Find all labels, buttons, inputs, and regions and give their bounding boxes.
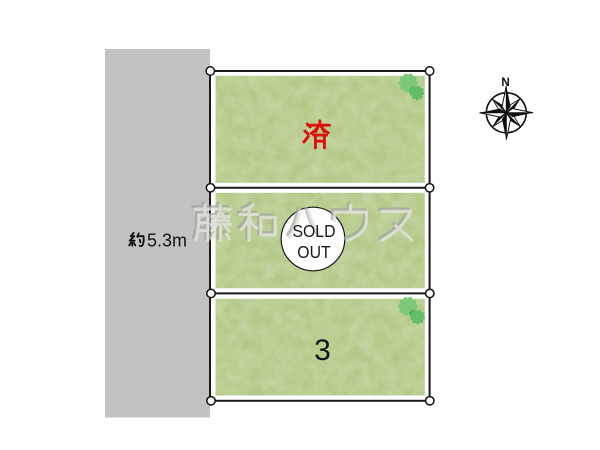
svg-text:3: 3 xyxy=(314,334,331,367)
svg-text:N: N xyxy=(501,77,509,89)
svg-text:OUT: OUT xyxy=(297,242,330,262)
svg-text:SOLD: SOLD xyxy=(292,221,335,241)
svg-text:5.3m: 5.3m xyxy=(147,231,187,251)
